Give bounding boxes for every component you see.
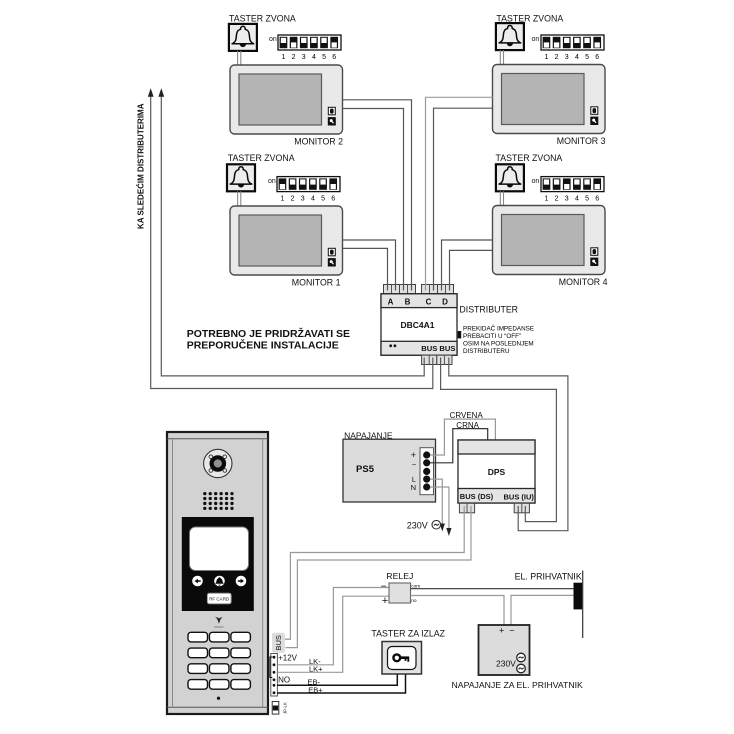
svg-text:BUS: BUS bbox=[439, 344, 455, 353]
svg-text:DPS: DPS bbox=[488, 467, 506, 477]
svg-text:PREKIDAČ IMPEDANSE: PREKIDAČ IMPEDANSE bbox=[463, 324, 534, 333]
svg-text:TASTER ZVONA: TASTER ZVONA bbox=[228, 153, 295, 163]
svg-text:1: 1 bbox=[281, 54, 285, 61]
svg-text:5: 5 bbox=[585, 196, 589, 203]
svg-text:BUS: BUS bbox=[274, 635, 283, 650]
svg-text:5: 5 bbox=[321, 196, 325, 203]
svg-text:6: 6 bbox=[595, 196, 599, 203]
svg-text:DISTRIBUTER: DISTRIBUTER bbox=[459, 305, 518, 315]
svg-text:TASTER ZVONA: TASTER ZVONA bbox=[229, 13, 296, 23]
svg-text:5: 5 bbox=[322, 54, 326, 61]
svg-text:230V: 230V bbox=[496, 658, 516, 668]
svg-text:4: 4 bbox=[312, 54, 316, 61]
svg-text:3: 3 bbox=[301, 196, 305, 203]
svg-text:A: A bbox=[388, 298, 394, 307]
svg-text:1: 1 bbox=[544, 196, 548, 203]
svg-text:4: 4 bbox=[575, 54, 579, 61]
svg-text:3: 3 bbox=[565, 54, 569, 61]
svg-text:OSIM NA POSLEDNJEM: OSIM NA POSLEDNJEM bbox=[463, 341, 534, 348]
svg-text:1: 1 bbox=[544, 54, 548, 61]
svg-text:KA SLEDEĆIM DISTRIBUTERIMA: KA SLEDEĆIM DISTRIBUTERIMA bbox=[137, 103, 146, 229]
svg-text:POTREBNO JE PRIDRŽAVATI SE: POTREBNO JE PRIDRŽAVATI SE bbox=[187, 327, 350, 340]
svg-text:NO: NO bbox=[278, 675, 290, 684]
svg-text:B: B bbox=[405, 298, 411, 307]
svg-text:on: on bbox=[532, 178, 540, 185]
svg-text:3: 3 bbox=[302, 54, 306, 61]
svg-text:−: − bbox=[509, 625, 514, 635]
svg-text:PS5: PS5 bbox=[356, 464, 375, 475]
svg-text:4: 4 bbox=[575, 196, 579, 203]
svg-text:6: 6 bbox=[331, 196, 335, 203]
svg-text:TASTER ZVONA: TASTER ZVONA bbox=[496, 13, 563, 23]
svg-text:on: on bbox=[268, 178, 276, 185]
svg-text:BUS: BUS bbox=[421, 344, 437, 353]
svg-text:TASTER ZA IZLAZ: TASTER ZA IZLAZ bbox=[371, 629, 445, 639]
svg-text:CRVENA: CRVENA bbox=[450, 411, 484, 420]
svg-text:on: on bbox=[532, 36, 540, 43]
svg-text:230V: 230V bbox=[407, 520, 428, 530]
svg-text:RF CARD: RF CARD bbox=[209, 597, 230, 602]
svg-text:–: – bbox=[412, 461, 416, 468]
svg-text:BUS (DS): BUS (DS) bbox=[460, 492, 494, 501]
svg-text:MONITOR 1: MONITOR 1 bbox=[292, 278, 341, 288]
svg-text:2: 2 bbox=[291, 196, 295, 203]
svg-text:−: − bbox=[381, 581, 387, 593]
svg-text:+: + bbox=[382, 595, 388, 607]
svg-text:MONITOR 2: MONITOR 2 bbox=[294, 137, 343, 147]
svg-text:3: 3 bbox=[565, 196, 569, 203]
svg-text:+12V: +12V bbox=[278, 654, 298, 663]
svg-text:4: 4 bbox=[311, 196, 315, 203]
svg-text:BUS (IU): BUS (IU) bbox=[504, 493, 535, 502]
svg-text:2: 2 bbox=[555, 54, 559, 61]
svg-text:2: 2 bbox=[292, 54, 296, 61]
svg-text:PREBACITI U “OFF”: PREBACITI U “OFF” bbox=[463, 333, 521, 340]
svg-text:+: + bbox=[499, 625, 504, 635]
svg-text:D: D bbox=[442, 298, 448, 307]
svg-text:C: C bbox=[426, 298, 432, 307]
svg-text:2: 2 bbox=[555, 196, 559, 203]
svg-text:MONITOR 3: MONITOR 3 bbox=[557, 136, 606, 146]
svg-text:5: 5 bbox=[585, 54, 589, 61]
svg-text:TASTER ZVONA: TASTER ZVONA bbox=[496, 153, 563, 163]
svg-text:MONITOR 4: MONITOR 4 bbox=[559, 277, 608, 287]
svg-text:DISTRIBUTERU: DISTRIBUTERU bbox=[463, 348, 510, 355]
svg-text:PREPORUČENE INSTALACIJE: PREPORUČENE INSTALACIJE bbox=[187, 338, 339, 351]
svg-text:CRNA: CRNA bbox=[456, 421, 479, 430]
svg-text:JP-LK: JP-LK bbox=[283, 702, 288, 714]
svg-text:6: 6 bbox=[332, 54, 336, 61]
svg-text:N: N bbox=[411, 483, 416, 492]
svg-text:on: on bbox=[269, 36, 277, 43]
svg-text:DBC4A1: DBC4A1 bbox=[400, 320, 434, 330]
svg-text:RELEJ: RELEJ bbox=[386, 571, 413, 581]
svg-text:EL. PRIHVATNIK: EL. PRIHVATNIK bbox=[515, 571, 582, 581]
svg-text:EB+: EB+ bbox=[308, 685, 323, 694]
svg-text:+: + bbox=[411, 450, 416, 460]
svg-text:1: 1 bbox=[280, 196, 284, 203]
svg-text:6: 6 bbox=[595, 54, 599, 61]
svg-text:NAPAJANJE ZA EL. PRIHVATNIK: NAPAJANJE ZA EL. PRIHVATNIK bbox=[452, 680, 584, 690]
svg-text:LK+: LK+ bbox=[309, 664, 323, 673]
svg-text:no: no bbox=[411, 599, 417, 604]
